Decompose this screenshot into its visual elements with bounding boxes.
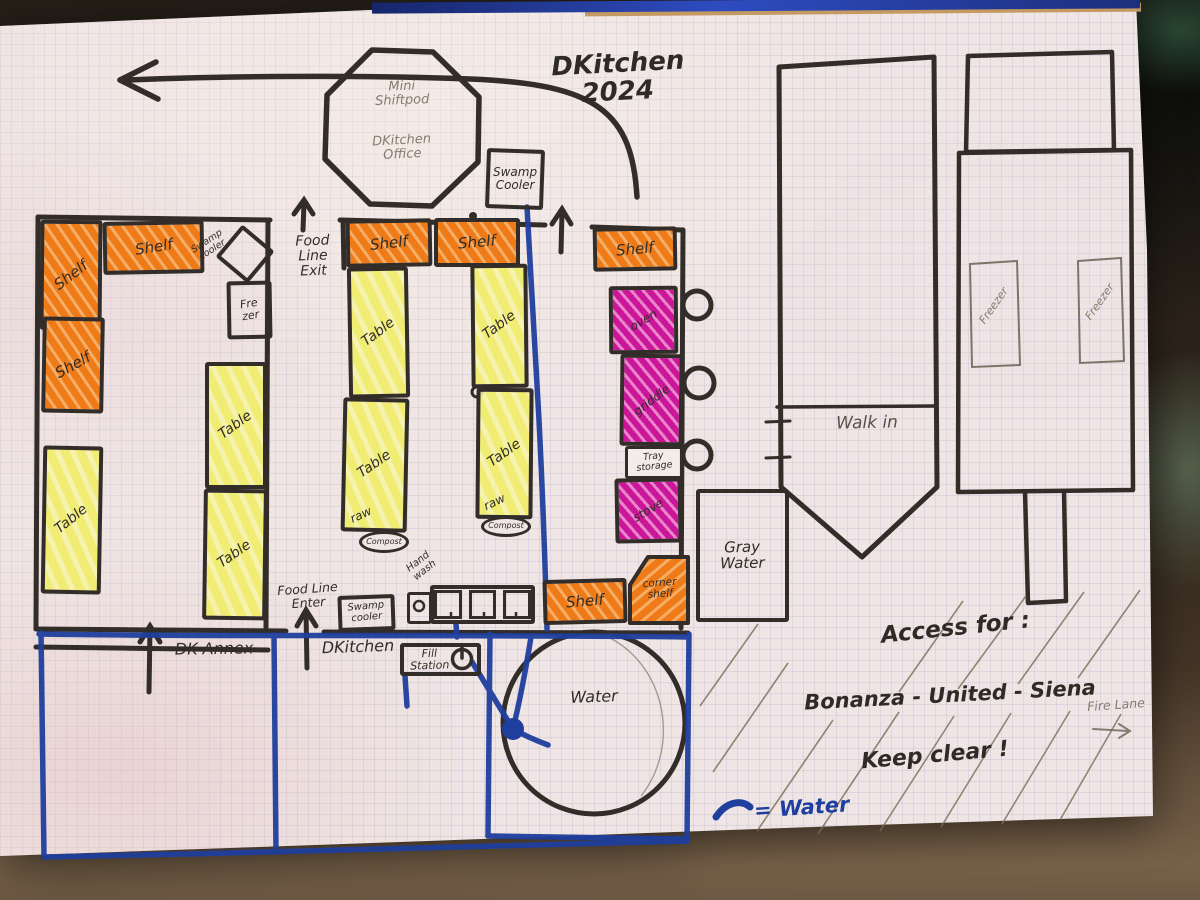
office-pod-octagon — [325, 50, 479, 206]
gray-water-label: Gray Water — [720, 539, 765, 572]
table-col2-lower-raw: Table raw — [341, 397, 410, 532]
shelf-label: Shelf — [566, 592, 605, 611]
table-col3-lower-raw: Table raw — [475, 388, 533, 519]
up-arrow-mid-entrance — [552, 209, 571, 252]
table-label: Table — [359, 315, 398, 349]
pod-label-bottom: DKitchen Office — [351, 131, 452, 164]
oven: oven — [609, 286, 679, 355]
corner-shelf-label: corner shelf — [631, 576, 688, 603]
fill-station: Fill Station — [400, 643, 481, 676]
swamp-cooler-bottom-label: Swamp cooler — [347, 601, 385, 626]
table-col2-upper: Table — [347, 266, 410, 398]
stove: stove — [614, 477, 682, 543]
food-line-exit-label: Food Line Exit — [281, 233, 345, 280]
shelf-label: Shelf — [458, 233, 497, 252]
burner-circles — [683, 291, 714, 469]
walk-in-outline — [766, 57, 937, 557]
water-tank-label: Water — [558, 687, 631, 707]
drawing-strokes — [0, 0, 1200, 900]
photo-of-hand-drawn-kitchen-map: { "title": "DKitchen\n2024", "pod": { "t… — [0, 0, 1200, 900]
shelf-label: Shelf — [134, 237, 174, 259]
fill-station-label: Fill Station — [410, 647, 450, 672]
freezer-small: Fre zer — [226, 281, 272, 340]
table-west: Table — [41, 445, 104, 594]
swamp-cooler-top-label: Swamp Cooler — [493, 166, 537, 192]
shelf-label: Shelf — [53, 349, 94, 381]
griddle: griddle — [620, 354, 684, 447]
table-label: Table — [355, 448, 394, 482]
freezer-small-label: Fre zer — [239, 297, 260, 323]
griddle-label: griddle — [631, 382, 672, 418]
shelf-top-a: Shelf — [346, 218, 433, 267]
shelf-bottom: Shelf — [542, 578, 627, 625]
sink-unit — [430, 585, 535, 624]
shelf-label: Shelf — [51, 257, 91, 293]
compost-bin-a: Compost — [359, 531, 409, 553]
water-tank-pencil-line — [610, 638, 663, 796]
water-tank-circle — [503, 632, 685, 814]
water-legend-tilde-icon — [716, 803, 750, 817]
shelf-top-b: Shelf — [434, 218, 520, 267]
pod-label-top: Mini Shiftpod — [352, 78, 453, 110]
compost-label: Compost — [488, 522, 524, 531]
sink-basin — [469, 590, 497, 619]
raw-label: raw — [482, 492, 508, 513]
table-col1-lower: Table — [202, 489, 268, 621]
table-label: Table — [217, 408, 256, 442]
raw-label: raw — [348, 505, 374, 526]
up-arrow-food-line-exit — [294, 200, 313, 230]
table-label: Table — [53, 502, 91, 537]
tray-storage-label: Tray storage — [635, 450, 673, 474]
dkitchen-area-label: DKitchen — [318, 637, 399, 657]
dk-annex-label: DK Annex — [168, 639, 260, 658]
tray-storage: Tray storage — [625, 446, 683, 479]
oven-label: oven — [628, 307, 660, 333]
up-arrow-food-line-enter — [297, 610, 316, 668]
shelf-west-upper: Shelf — [40, 220, 103, 331]
shelf-top-right: Shelf — [593, 226, 678, 271]
hand-wash-sink — [407, 592, 432, 624]
swamp-cooler-top: Swamp Cooler — [485, 148, 545, 210]
paper-wrap: Shelf Shelf Shelf Shelf Shelf Shelf Shel… — [0, 0, 1200, 900]
table-col1-upper: Table — [205, 362, 267, 489]
shelf-label: Shelf — [369, 233, 408, 253]
table-label: Table — [480, 309, 519, 343]
water-valve-dot — [502, 718, 524, 740]
table-col3-upper: Table — [470, 264, 528, 389]
stove-label: stove — [631, 496, 666, 524]
food-line-enter-label: Food Line Enter — [271, 580, 345, 612]
table-label: Table — [216, 538, 255, 572]
shelf-label: Shelf — [616, 239, 655, 258]
sink-basin — [434, 590, 462, 619]
swamp-cooler-bottom: Swamp cooler — [337, 594, 395, 632]
sink-basin — [503, 590, 531, 619]
table-label: Table — [485, 437, 524, 471]
walk-in-label: Walk in — [830, 413, 904, 433]
gray-water: Gray Water — [696, 489, 789, 622]
compost-bin-b: Compost — [481, 516, 531, 537]
shelf-west-lower: Shelf — [41, 316, 105, 413]
map-title: DKitchen 2024 — [551, 47, 684, 110]
compost-label: Compost — [366, 538, 402, 547]
